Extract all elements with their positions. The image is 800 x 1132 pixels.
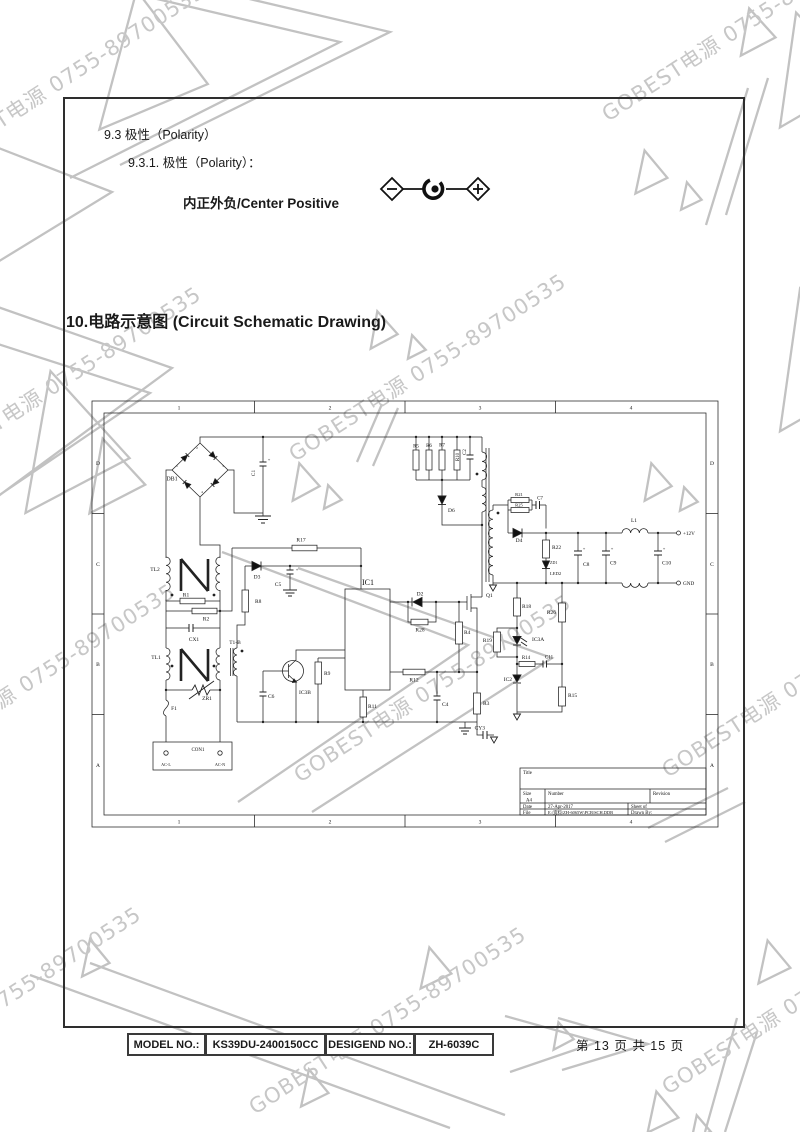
ref-label: R12 (409, 678, 418, 684)
bridge-pin-label: 4 (201, 490, 203, 494)
plus-mark: + (583, 546, 586, 551)
frame-col-label: 4 (630, 406, 633, 412)
titleblock-drawn-label: Drawn By: (631, 811, 652, 816)
titleblock-file-label: File (523, 811, 530, 816)
ref-label: IC3B (299, 690, 311, 696)
bridge-pin-label: 3 (222, 464, 224, 468)
frame-zone-labels: 1 2 3 4 1 2 3 4 D C B A D C B A (96, 406, 714, 826)
ref-label: R14 (522, 656, 531, 661)
ref-label: C5 (275, 582, 282, 588)
ref-label: Q1 (486, 593, 493, 599)
plus-mark: + (268, 457, 271, 462)
titleblock-size-value: A4 (526, 799, 532, 804)
ref-label: ZR1 (202, 696, 212, 702)
ref-label: C1 (251, 470, 257, 477)
ref-label: TL1 (151, 655, 161, 661)
bridge-pin-label: 2 (196, 446, 198, 450)
polarity-symbol (372, 172, 494, 208)
ref-label: R6 (426, 444, 432, 449)
ref-label: C6 (268, 694, 275, 700)
frame-col-label: 1 (178, 406, 181, 412)
ref-label: C9 (610, 561, 617, 567)
ref-label: R1 (183, 593, 190, 599)
schematic-frame (92, 401, 718, 827)
ref-label: IC1 (362, 578, 374, 587)
ref-label: C4 (442, 702, 449, 708)
frame-col-label: 1 (178, 820, 181, 826)
ref-label: R22 (552, 545, 561, 551)
ref-label: LED2 (550, 571, 562, 576)
ref-label: R17 (296, 538, 305, 544)
ref-label: D6 (448, 508, 455, 514)
design-no-label: DESIGEND NO.: (326, 1033, 415, 1056)
ref-label: R26 (547, 610, 556, 616)
content-layer: 9.3 极性（Polarity） 9.3.1. 极性（Polarity）： 内正… (0, 0, 800, 1132)
frame-row-label: A (96, 763, 100, 769)
frame-col-label: 2 (329, 406, 332, 412)
plus-mark: + (611, 546, 614, 551)
ref-label: R19 (483, 638, 492, 644)
frame-row-label: D (710, 461, 714, 467)
circuit-schematic: DB1 1 2 3 4 C1 TL2 R1 R2 CX1 TL1 ZR1 F1 … (88, 399, 722, 836)
ref-label: CX1 (189, 637, 200, 643)
capacitors (189, 455, 662, 739)
model-no-label: MODEL NO.: (127, 1033, 206, 1056)
titleblock-title-label: Title (523, 771, 532, 776)
footer-model-table: MODEL NO.: KS39DU-2400150CC DESIGEND NO.… (127, 1033, 494, 1056)
ref-label: R2 (203, 617, 210, 623)
ref-label: C11 (545, 656, 554, 661)
frame-col-label: 2 (329, 820, 332, 826)
ref-label: R18 (522, 604, 531, 610)
titleblock-size-label: Size (523, 792, 531, 797)
ref-label: R3 (483, 701, 490, 707)
frame-row-label: A (710, 763, 714, 769)
ref-label: R7 (439, 444, 445, 449)
ref-label: AC-N (215, 762, 225, 767)
page-number: 第 13 页 共 15 页 (576, 1035, 684, 1054)
ref-label: L1 (631, 518, 637, 524)
titleblock-number-label: Number (548, 792, 564, 797)
ref-label: CON1 (191, 748, 205, 753)
ref-label: C8 (583, 562, 590, 568)
ref-label: C2 (463, 449, 468, 455)
plus-mark: + (296, 567, 299, 572)
bridge-pin-label: 1 (176, 464, 178, 468)
titleblock-sheet-label: Sheet of (631, 805, 647, 810)
ref-label: D3 (254, 575, 261, 581)
ref-label: R11 (368, 704, 377, 710)
ref-label: R5 (413, 445, 419, 450)
frame-row-label: C (710, 562, 714, 568)
section-9-3-1-heading: 9.3.1. 极性（Polarity）： (128, 152, 261, 171)
ref-label: C10 (662, 561, 671, 567)
ref-label: C7 (537, 497, 543, 502)
titleblock-revision-label: Revision (653, 792, 671, 797)
titleblock-file-value: E:\资料\ZH-6065W\PCB\SCH.DDB (548, 809, 613, 816)
ref-label: R9 (324, 671, 331, 677)
ref-label: R28 (415, 628, 424, 634)
ref-label: IC3A (532, 637, 544, 643)
titleblock-date-label: Date (523, 805, 532, 810)
ref-label: CY3 (475, 726, 486, 732)
ref-label: D2 (417, 592, 424, 598)
frame-row-label: B (96, 662, 100, 668)
ref-label: AC-L (161, 762, 171, 767)
ref-label: D4 (516, 538, 523, 544)
polarity-label: 内正外负/Center Positive (183, 192, 339, 212)
ref-label: R15 (568, 693, 577, 699)
section-10-heading: 10.电路示意图 (Circuit Schematic Drawing) (66, 308, 386, 332)
frame-col-label: 3 (479, 406, 482, 412)
ref-label: IC2 (504, 677, 513, 683)
design-no-value: ZH-6039C (415, 1033, 494, 1056)
frame-row-label: D (96, 461, 100, 467)
ref-label: ZD1 (550, 560, 557, 565)
ref-label: R25 (515, 502, 523, 507)
frame-row-label: B (710, 662, 714, 668)
model-no-value: KS39DU-2400150CC (206, 1033, 326, 1056)
center-dot (431, 185, 438, 192)
plus-mark: + (663, 546, 666, 551)
ref-label: R10 (456, 452, 461, 461)
output-label: +12V (683, 531, 695, 537)
ref-label: TL2 (150, 567, 160, 573)
output-label: GND (683, 581, 694, 587)
ref-label: R8 (255, 599, 262, 605)
frame-col-label: 4 (630, 820, 633, 826)
junction-dots (164, 436, 659, 755)
ref-label: R4 (464, 630, 471, 636)
ref-label: R21 (515, 492, 523, 497)
ref-label: T1-B (229, 640, 241, 646)
document-page: GOBEST电源 0755-89700535 GOBEST电源 0755-897… (0, 0, 800, 1132)
frame-row-label: C (96, 562, 100, 568)
ref-label: DB1 (166, 477, 177, 483)
frame-col-label: 3 (479, 820, 482, 826)
ref-label: F1 (171, 706, 177, 712)
section-9-3-heading: 9.3 极性（Polarity） (104, 124, 217, 143)
